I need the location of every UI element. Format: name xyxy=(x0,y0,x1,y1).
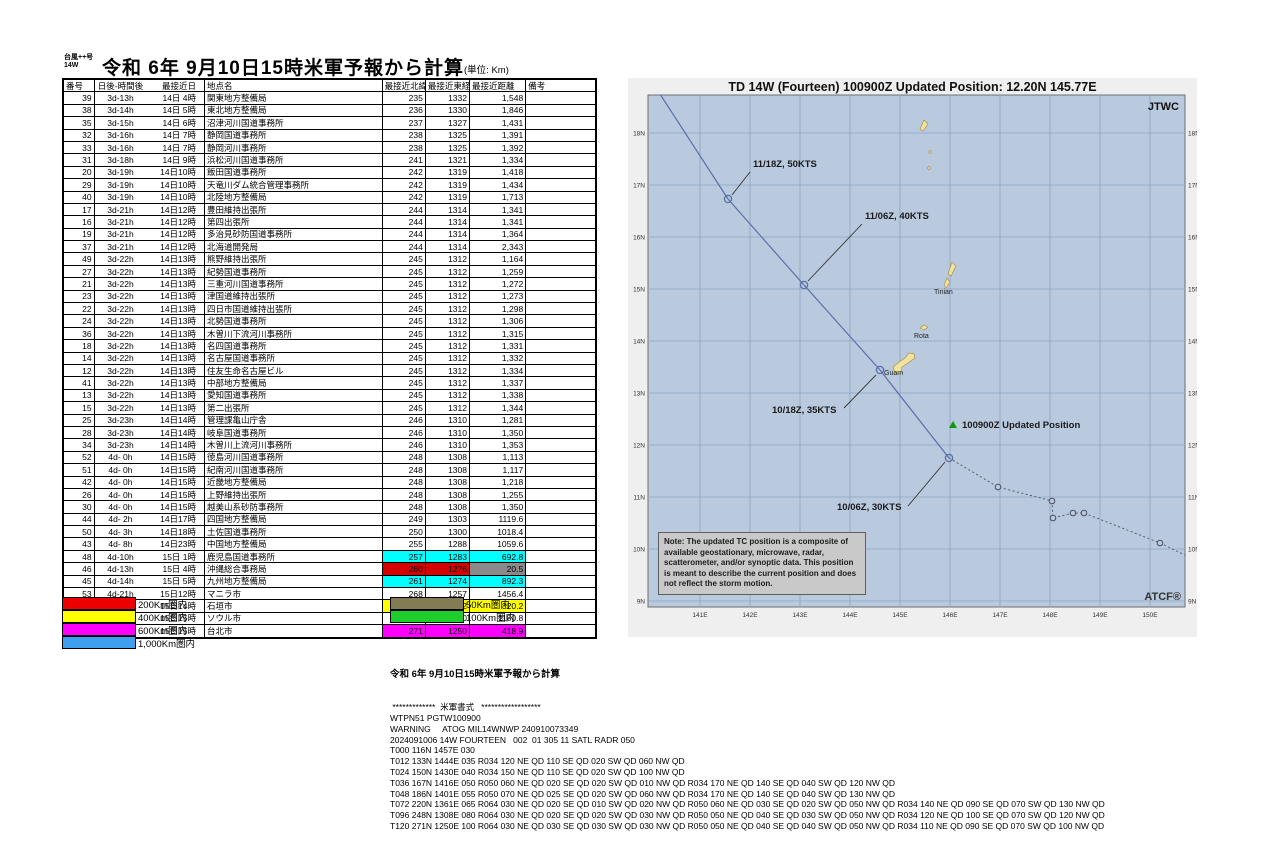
cell-longitude: 1312 xyxy=(425,352,469,364)
cell-distance: 1,306 xyxy=(469,315,525,327)
table-row: 313d-18h14日 9時浜松河川国道事務所24113211,334 xyxy=(63,154,596,166)
cell-remarks xyxy=(526,426,596,438)
cell-latitude: 246 xyxy=(382,439,425,451)
warning-line: T072 220N 1361E 065 R064 030 NE QD 020 S… xyxy=(390,799,1105,810)
cell-latitude: 248 xyxy=(382,488,425,500)
lat-tick-label: 14N xyxy=(1188,339,1197,346)
cell-place-name: 津国道維持出張所 xyxy=(205,290,383,302)
cell-number: 26 xyxy=(63,488,94,500)
cell-latitude: 248 xyxy=(382,476,425,488)
table-row: 143d-22h14日13時名古屋国道事務所24513121,332 xyxy=(63,352,596,364)
cell-distance: 692.8 xyxy=(469,550,525,562)
table-row: 264d- 0h14日15時上野維持出張所24813081,255 xyxy=(63,488,596,500)
cell-latitude: 245 xyxy=(382,253,425,265)
cell-latitude: 248 xyxy=(382,501,425,513)
cell-remarks xyxy=(526,104,596,116)
warning-line: T000 116N 1457E 030 xyxy=(390,745,1105,756)
cell-remarks xyxy=(526,402,596,414)
cell-longitude: 1312 xyxy=(425,377,469,389)
table-row: 464d-13h15日 4時沖縄総合事務局260127620.5 xyxy=(63,563,596,575)
col-header-time: 日後-時間後 最接近日 xyxy=(94,79,204,92)
table-row: 434d- 8h14日23時中国地方整備局25512881059.6 xyxy=(63,538,596,550)
warning-line: 2024091006 14W FOURTEEN 002 01 305 11 SA… xyxy=(390,735,1105,746)
legend-item: 50Km圏内 xyxy=(390,597,515,610)
lat-tick-label: 12N xyxy=(1188,443,1197,450)
cell-place-name: 北海道開発局 xyxy=(205,241,383,253)
cell-distance: 1,273 xyxy=(469,290,525,302)
cell-latitude: 244 xyxy=(382,203,425,215)
cell-remarks xyxy=(526,563,596,575)
cell-place-name: 紀南河川国道事務所 xyxy=(205,464,383,476)
cell-time: 4d- 0h14日15時 xyxy=(94,464,204,476)
table-row: 383d-14h14日 5時東北地方整備局23613301,846 xyxy=(63,104,596,116)
cell-longitude: 1319 xyxy=(425,166,469,178)
legend-swatch xyxy=(390,610,464,623)
cell-remarks xyxy=(526,166,596,178)
cell-number: 13 xyxy=(63,389,94,401)
cell-place-name: 第四出張所 xyxy=(205,216,383,228)
cell-distance: 1,548 xyxy=(469,92,525,104)
cell-place-name: 熊野維持出張所 xyxy=(205,253,383,265)
table-row: 203d-19h14日10時飯田国道事務所24213191,418 xyxy=(63,166,596,178)
cell-latitude: 271 xyxy=(382,625,425,638)
lat-tick-label: 13N xyxy=(633,391,645,398)
col-header-number: 番号 xyxy=(63,79,94,92)
cell-time: 3d-21h14日12時 xyxy=(94,216,204,228)
cell-number: 21 xyxy=(63,278,94,290)
cell-place-name: 天竜川ダム統合管理事務所 xyxy=(205,179,383,191)
cell-distance: 1,259 xyxy=(469,265,525,277)
us-forecast-text-block: 令和 6年 9月10日15時米軍予報から計算 ************* 米軍書… xyxy=(390,647,1105,843)
cell-place-name: マニラ市 xyxy=(205,588,383,600)
cell-distance: 1,431 xyxy=(469,117,525,129)
cell-place-name: 紀勢国道事務所 xyxy=(205,265,383,277)
cell-time: 3d-21h14日12時 xyxy=(94,203,204,215)
col-header-remarks: 備考 xyxy=(526,79,596,92)
cell-distance: 1,341 xyxy=(469,216,525,228)
cell-distance: 1,298 xyxy=(469,303,525,315)
cell-time: 3d-19h14日10時 xyxy=(94,179,204,191)
cell-place-name: 岐阜国道事務所 xyxy=(205,426,383,438)
cell-distance: 892.3 xyxy=(469,575,525,587)
lon-tick-label: 145E xyxy=(892,612,908,619)
table-row: 173d-21h14日12時豊田維持出張所24413141,341 xyxy=(63,203,596,215)
cell-distance: 1,218 xyxy=(469,476,525,488)
cell-distance: 1,364 xyxy=(469,228,525,240)
lon-tick-label: 148E xyxy=(1042,612,1058,619)
legend-label: 200Km圏内 xyxy=(138,597,187,611)
cell-distance: 1,117 xyxy=(469,464,525,476)
cell-place-name: 北陸地方整備局 xyxy=(205,191,383,203)
cell-number: 14 xyxy=(63,352,94,364)
cell-longitude: 1310 xyxy=(425,426,469,438)
cell-number: 24 xyxy=(63,315,94,327)
cell-latitude: 245 xyxy=(382,352,425,364)
cell-place-name: 木曽川上流河川事務所 xyxy=(205,439,383,451)
cell-number: 38 xyxy=(63,104,94,116)
table-row: 393d-13h14日 4時関東地方整備局23513321,548 xyxy=(63,92,596,104)
cell-longitude: 1314 xyxy=(425,203,469,215)
cell-longitude: 1312 xyxy=(425,265,469,277)
warning-lines: ************* 米軍書式 ******************WTP… xyxy=(390,702,1105,832)
table-row: 253d-23h14日14時管理課亀山庁舎24613101,281 xyxy=(63,414,596,426)
cell-time: 4d- 0h14日15時 xyxy=(94,476,204,488)
table-row: 363d-22h14日13時木曽川下流河川事務所24513121,315 xyxy=(63,327,596,339)
legend-label: 50Km圏内 xyxy=(466,597,510,611)
cell-latitude: 248 xyxy=(382,464,425,476)
legend-swatch xyxy=(390,597,464,610)
page-title: 令和 6年 9月10日15時米軍予報から計算 xyxy=(102,53,464,80)
lon-tick-label: 141E xyxy=(692,612,708,619)
lon-tick-label: 147E xyxy=(992,612,1008,619)
cell-place-name: 木曽川下流河川事務所 xyxy=(205,327,383,339)
cell-time: 3d-22h14日13時 xyxy=(94,327,204,339)
cell-remarks xyxy=(526,389,596,401)
lat-tick-label: 11N xyxy=(634,495,646,502)
warning-line: T048 186N 1401E 055 R050 070 NE QD 025 S… xyxy=(390,789,1105,800)
cell-distance: 1,341 xyxy=(469,203,525,215)
cell-place-name: 管理課亀山庁舎 xyxy=(205,414,383,426)
cell-time: 3d-22h14日13時 xyxy=(94,265,204,277)
lat-tick-label: 18N xyxy=(633,131,645,138)
cell-longitude: 1314 xyxy=(425,241,469,253)
cell-number: 43 xyxy=(63,538,94,550)
cell-distance: 1,418 xyxy=(469,166,525,178)
cell-number: 48 xyxy=(63,550,94,562)
cell-remarks xyxy=(526,92,596,104)
cell-distance: 1,350 xyxy=(469,501,525,513)
table-row: 514d- 0h14日15時紀南河川国道事務所24813081,117 xyxy=(63,464,596,476)
distance-legend-right: 50Km圏内100Km圏内 xyxy=(390,597,515,623)
cell-place-name: 愛知国道事務所 xyxy=(205,389,383,401)
table-row: 223d-22h14日13時四日市国道維持出張所24513121,298 xyxy=(63,303,596,315)
cell-number: 19 xyxy=(63,228,94,240)
cell-time: 3d-16h14日 7時 xyxy=(94,141,204,153)
cell-number: 50 xyxy=(63,526,94,538)
cell-number: 17 xyxy=(63,203,94,215)
cell-time: 3d-14h14日 5時 xyxy=(94,104,204,116)
cell-distance: 1,272 xyxy=(469,278,525,290)
islet-dot xyxy=(928,167,931,170)
cell-number: 20 xyxy=(63,166,94,178)
cell-longitude: 1310 xyxy=(425,439,469,451)
legend-item: 600Km圏内 xyxy=(62,623,195,636)
ocean-background xyxy=(648,95,1185,607)
cell-remarks xyxy=(526,253,596,265)
cell-latitude: 255 xyxy=(382,538,425,550)
cell-latitude: 245 xyxy=(382,340,425,352)
closest-approach-table: 番号 日後-時間後 最接近日 地点名 最接近北緯 最接近東経 最接近距離 備考 … xyxy=(62,78,597,639)
lon-tick-label: 142E xyxy=(742,612,758,619)
cell-remarks xyxy=(526,550,596,562)
cell-place-name: 関東地方整備局 xyxy=(205,92,383,104)
jtwc-track-map-panel: 18N18N17N17N16N16N15N15N14N14N13N13N12N1… xyxy=(628,78,1197,637)
cell-remarks xyxy=(526,588,596,600)
cell-remarks xyxy=(526,129,596,141)
table-row: 413d-22h14日13時中部地方整備局24513121,337 xyxy=(63,377,596,389)
cell-time: 3d-22h14日13時 xyxy=(94,290,204,302)
cell-latitude: 245 xyxy=(382,377,425,389)
col-header-place: 地点名 xyxy=(205,79,383,92)
cell-place-name: 住友生命名古屋ビル xyxy=(205,364,383,376)
cell-longitude: 1308 xyxy=(425,476,469,488)
cell-time: 3d-22h14日13時 xyxy=(94,315,204,327)
cell-number: 39 xyxy=(63,92,94,104)
cell-number: 31 xyxy=(63,154,94,166)
updated-position-label: 100900Z Updated Position xyxy=(962,420,1080,431)
warning-line: T036 167N 1416E 050 R050 060 NE QD 020 S… xyxy=(390,778,1105,789)
cell-distance: 1,164 xyxy=(469,253,525,265)
cell-time: 3d-23h14日14時 xyxy=(94,414,204,426)
table-row: 504d- 3h14日18時土佐国道事務所25013001018.4 xyxy=(63,526,596,538)
cell-remarks xyxy=(526,526,596,538)
cell-longitude: 1325 xyxy=(425,129,469,141)
cell-time: 3d-23h14日14時 xyxy=(94,439,204,451)
cell-place-name: 飯田国道事務所 xyxy=(205,166,383,178)
cell-remarks xyxy=(526,364,596,376)
cell-distance: 1,315 xyxy=(469,327,525,339)
track-label-50kts: 11/18Z, 50KTS xyxy=(753,159,817,170)
cell-remarks xyxy=(526,278,596,290)
cell-remarks xyxy=(526,290,596,302)
legend-swatch xyxy=(62,636,136,649)
cell-time: 3d-22h14日13時 xyxy=(94,364,204,376)
cell-longitude: 1330 xyxy=(425,104,469,116)
table-row: 183d-22h14日13時名四国道事務所24513121,331 xyxy=(63,340,596,352)
cell-time: 4d- 0h14日15時 xyxy=(94,501,204,513)
cell-time: 3d-22h14日13時 xyxy=(94,253,204,265)
table-row: 243d-22h14日13時北勢国道事務所24513121,306 xyxy=(63,315,596,327)
cell-time: 4d- 2h14日17時 xyxy=(94,513,204,525)
lat-tick-label: 15N xyxy=(1188,287,1197,294)
cell-distance: 1,334 xyxy=(469,364,525,376)
cell-number: 44 xyxy=(63,513,94,525)
cell-longitude: 1303 xyxy=(425,513,469,525)
cell-latitude: 238 xyxy=(382,129,425,141)
cell-remarks xyxy=(526,352,596,364)
cell-time: 4d-13h15日 4時 xyxy=(94,563,204,575)
cell-number: 36 xyxy=(63,327,94,339)
cell-distance: 1,337 xyxy=(469,377,525,389)
cell-remarks xyxy=(526,538,596,550)
cell-distance: 2,343 xyxy=(469,241,525,253)
cell-longitude: 1308 xyxy=(425,451,469,463)
lat-tick-label: 9N xyxy=(637,599,646,606)
cell-remarks xyxy=(526,340,596,352)
cell-distance: 1,255 xyxy=(469,488,525,500)
cell-remarks xyxy=(526,575,596,587)
cell-longitude: 1312 xyxy=(425,253,469,265)
lat-tick-label: 17N xyxy=(633,183,645,190)
cell-number: 40 xyxy=(63,191,94,203)
cell-remarks xyxy=(526,216,596,228)
table-row: 333d-16h14日 7時静岡河川事務所23813251,392 xyxy=(63,141,596,153)
cell-time: 3d-13h14日 4時 xyxy=(94,92,204,104)
cell-distance: 1,334 xyxy=(469,154,525,166)
cell-place-name: ソウル市 xyxy=(205,612,383,624)
cell-number: 12 xyxy=(63,364,94,376)
cell-remarks xyxy=(526,315,596,327)
cell-latitude: 261 xyxy=(382,575,425,587)
cell-number: 22 xyxy=(63,303,94,315)
cell-longitude: 1312 xyxy=(425,290,469,302)
cell-number: 23 xyxy=(63,290,94,302)
legend-label: 600Km圏内 xyxy=(138,623,187,637)
table-row: 424d- 0h14日15時近畿地方整備局24813081,218 xyxy=(63,476,596,488)
cell-latitude: 242 xyxy=(382,191,425,203)
cell-remarks xyxy=(526,513,596,525)
cell-distance: 418.9 xyxy=(469,625,525,638)
island-label-guam: Guam xyxy=(884,370,903,377)
cell-time: 3d-22h14日13時 xyxy=(94,402,204,414)
cell-number: 51 xyxy=(63,464,94,476)
legend-item: 1,000Km圏内 xyxy=(62,636,195,649)
cell-remarks xyxy=(526,600,596,612)
cell-place-name: 沖縄総合事務局 xyxy=(205,563,383,575)
cell-longitude: 1274 xyxy=(425,575,469,587)
cell-place-name: 近畿地方整備局 xyxy=(205,476,383,488)
cell-remarks xyxy=(526,488,596,500)
track-label-40kts: 11/06Z, 40KTS xyxy=(865,211,929,222)
cell-distance: 1,338 xyxy=(469,389,525,401)
cell-number: 16 xyxy=(63,216,94,228)
table-row: 304d- 0h14日15時越美山系砂防事務所24813081,350 xyxy=(63,501,596,513)
cell-time: 3d-22h14日13時 xyxy=(94,340,204,352)
island-label-tinian: Tinian xyxy=(934,289,953,296)
legend-swatch xyxy=(62,623,136,636)
cell-longitude: 1312 xyxy=(425,340,469,352)
cell-number: 35 xyxy=(63,117,94,129)
lat-tick-label: 12N xyxy=(633,443,645,450)
cell-longitude: 1327 xyxy=(425,117,469,129)
cell-place-name: 静岡国道事務所 xyxy=(205,129,383,141)
warning-line: WTPN51 PGTW100900 xyxy=(390,713,1105,724)
col-header-lat: 最接近北緯 xyxy=(382,79,425,92)
cell-latitude: 238 xyxy=(382,141,425,153)
cell-place-name: 石垣市 xyxy=(205,600,383,612)
cell-time: 3d-22h14日13時 xyxy=(94,278,204,290)
cell-time: 3d-16h14日 7時 xyxy=(94,129,204,141)
storm-id-label: 台風++号 14W xyxy=(64,54,93,70)
cell-place-name: 土佐国道事務所 xyxy=(205,526,383,538)
col-header-distance: 最接近距離 xyxy=(469,79,525,92)
cell-longitude: 1250 xyxy=(425,625,469,638)
cell-latitude: 248 xyxy=(382,451,425,463)
table-row: 484d-10h15日 1時鹿児島国道事務所2571283692.8 xyxy=(63,550,596,562)
cell-remarks xyxy=(526,451,596,463)
cell-remarks xyxy=(526,303,596,315)
cell-number: 30 xyxy=(63,501,94,513)
cell-latitude: 249 xyxy=(382,513,425,525)
cell-remarks xyxy=(526,414,596,426)
cell-longitude: 1308 xyxy=(425,464,469,476)
cell-remarks xyxy=(526,179,596,191)
lat-tick-label: 15N xyxy=(633,287,645,294)
cell-number: 33 xyxy=(63,141,94,153)
cell-latitude: 242 xyxy=(382,166,425,178)
cell-latitude: 244 xyxy=(382,241,425,253)
cell-latitude: 245 xyxy=(382,303,425,315)
warning-line: T096 248N 1308E 080 R064 030 NE QD 020 S… xyxy=(390,810,1105,821)
cell-distance: 1,331 xyxy=(469,340,525,352)
lat-tick-label: 18N xyxy=(1188,131,1197,138)
table-row: 353d-15h14日 6時沼津河川国道事務所23713271,431 xyxy=(63,117,596,129)
cell-number: 25 xyxy=(63,414,94,426)
cell-longitude: 1319 xyxy=(425,179,469,191)
cell-latitude: 245 xyxy=(382,290,425,302)
cell-remarks xyxy=(526,117,596,129)
cell-place-name: 豊田維持出張所 xyxy=(205,203,383,215)
cell-latitude: 246 xyxy=(382,426,425,438)
cell-place-name: 越美山系砂防事務所 xyxy=(205,501,383,513)
cell-remarks xyxy=(526,241,596,253)
cell-number: 29 xyxy=(63,179,94,191)
table-row: 153d-22h14日13時第二出張所24513121,344 xyxy=(63,402,596,414)
lat-tick-label: 17N xyxy=(1188,183,1197,190)
cell-time: 3d-15h14日 6時 xyxy=(94,117,204,129)
cell-latitude: 245 xyxy=(382,315,425,327)
table-row: 213d-22h14日13時三重河川国道事務所24513121,272 xyxy=(63,278,596,290)
cell-longitude: 1308 xyxy=(425,501,469,513)
lat-tick-label: 13N xyxy=(1188,391,1197,398)
cell-longitude: 1308 xyxy=(425,488,469,500)
cell-place-name: 多治見砂防国道事務所 xyxy=(205,228,383,240)
cell-place-name: 中国地方整備局 xyxy=(205,538,383,550)
lat-tick-label: 16N xyxy=(1188,235,1197,242)
warning-line: T024 150N 1430E 040 R034 150 NE QD 110 S… xyxy=(390,767,1105,778)
table-row: 444d- 2h14日17時四国地方整備局24913031119.6 xyxy=(63,513,596,525)
cell-number: 32 xyxy=(63,129,94,141)
cell-place-name: 沼津河川国道事務所 xyxy=(205,117,383,129)
cell-place-name: 北勢国道事務所 xyxy=(205,315,383,327)
cell-latitude: 244 xyxy=(382,216,425,228)
cell-latitude: 245 xyxy=(382,389,425,401)
cell-distance: 1,350 xyxy=(469,426,525,438)
cell-distance: 1018.4 xyxy=(469,526,525,538)
cell-remarks xyxy=(526,265,596,277)
cell-latitude: 260 xyxy=(382,563,425,575)
cell-longitude: 1312 xyxy=(425,278,469,290)
cell-distance: 20.5 xyxy=(469,563,525,575)
cell-place-name: 静岡河川事務所 xyxy=(205,141,383,153)
cell-remarks xyxy=(526,327,596,339)
cell-time: 3d-23h14日14時 xyxy=(94,426,204,438)
cell-time: 3d-18h14日 9時 xyxy=(94,154,204,166)
cell-place-name: 名四国道事務所 xyxy=(205,340,383,352)
cell-distance: 1,113 xyxy=(469,451,525,463)
cell-number: 34 xyxy=(63,439,94,451)
cell-remarks xyxy=(526,154,596,166)
cell-longitude: 1319 xyxy=(425,191,469,203)
track-label-30kts: 10/06Z, 30KTS xyxy=(837,502,901,513)
lon-tick-label: 144E xyxy=(842,612,858,619)
table-header-row: 番号 日後-時間後 最接近日 地点名 最接近北緯 最接近東経 最接近距離 備考 xyxy=(63,79,596,92)
islet-dot xyxy=(929,151,932,154)
cell-place-name: 名古屋国道事務所 xyxy=(205,352,383,364)
table-row: 493d-22h14日13時熊野維持出張所24513121,164 xyxy=(63,253,596,265)
col-header-lon: 最接近東経 xyxy=(425,79,469,92)
cell-time: 3d-22h14日13時 xyxy=(94,377,204,389)
table-row: 163d-21h14日12時第四出張所24413141,341 xyxy=(63,216,596,228)
legend-swatch xyxy=(62,597,136,610)
cell-distance: 1,332 xyxy=(469,352,525,364)
atcf-watermark: ATCF® xyxy=(1144,591,1181,603)
lat-tick-label: 11N xyxy=(1188,495,1197,502)
warning-line: T120 271N 1250E 100 R064 030 NE QD 030 S… xyxy=(390,821,1105,832)
cell-place-name: 四日市国道維持出張所 xyxy=(205,303,383,315)
cell-latitude: 245 xyxy=(382,278,425,290)
warning-line: T012 133N 1444E 035 R034 120 NE QD 110 S… xyxy=(390,756,1105,767)
